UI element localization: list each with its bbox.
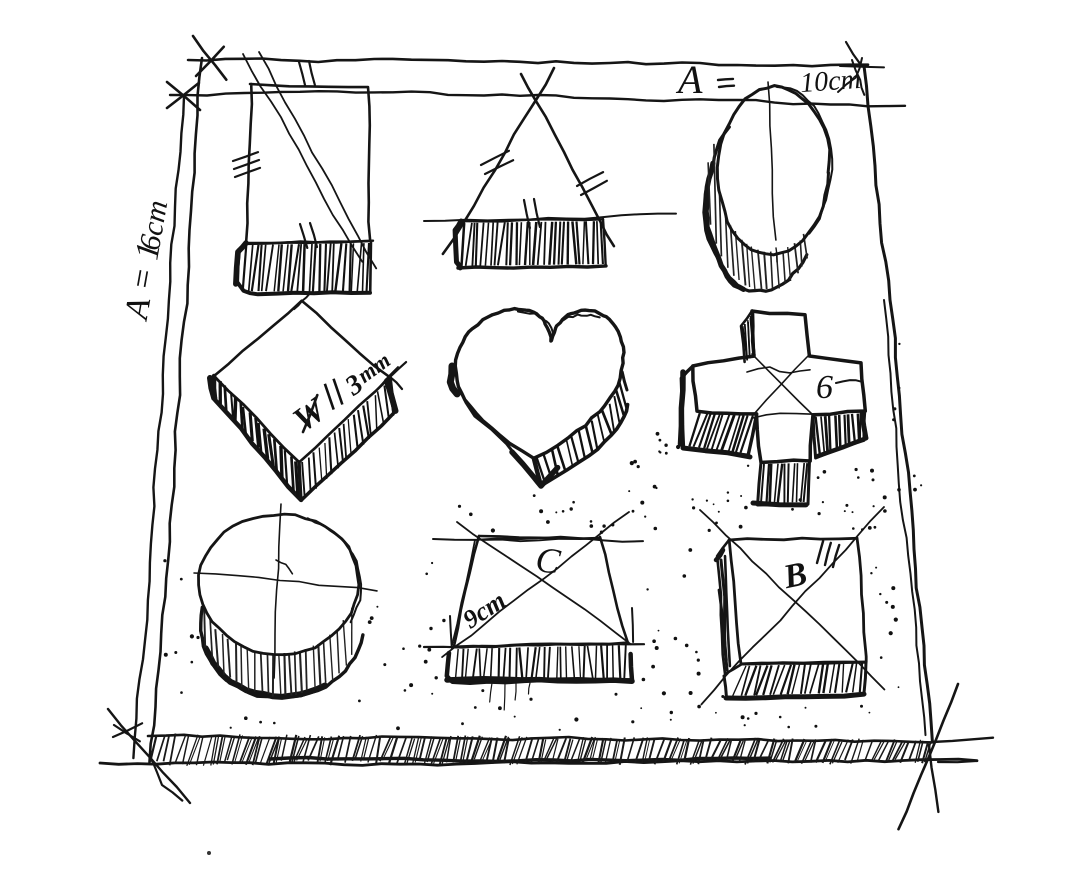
svg-text:A: A [675, 57, 703, 102]
svg-text:C: C [533, 539, 563, 582]
svg-text:10cm: 10cm [799, 64, 862, 99]
svg-text:6cm: 6cm [133, 198, 174, 253]
svg-text:B: B [779, 555, 810, 596]
svg-text:6: 6 [816, 369, 833, 406]
